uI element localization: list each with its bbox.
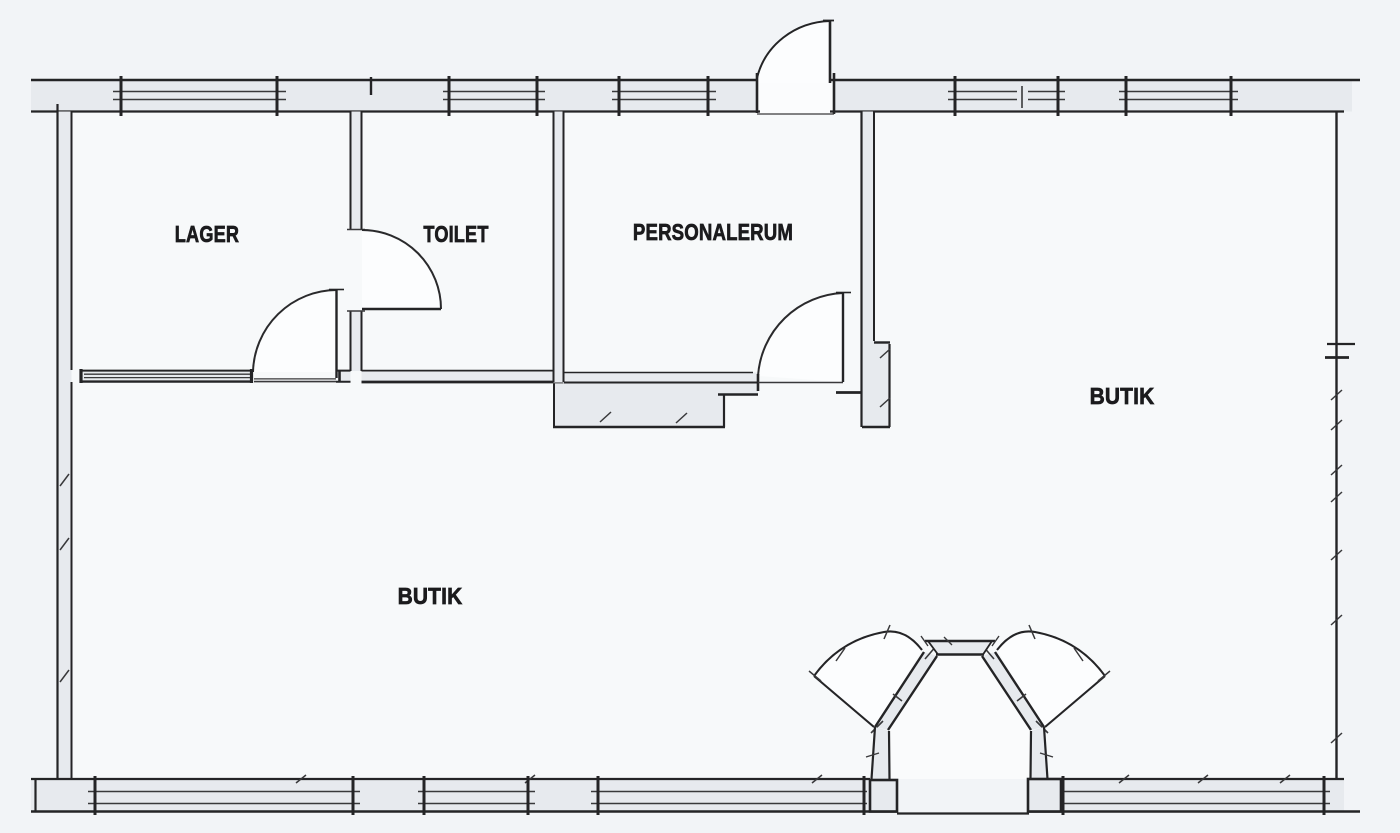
svg-text:LAGER: LAGER <box>175 222 239 248</box>
svg-text:PERSONALERUM: PERSONALERUM <box>633 220 793 245</box>
svg-text:BUTIK: BUTIK <box>398 583 463 609</box>
svg-text:TOILET: TOILET <box>423 222 488 248</box>
svg-text:BUTIK: BUTIK <box>1090 383 1155 409</box>
